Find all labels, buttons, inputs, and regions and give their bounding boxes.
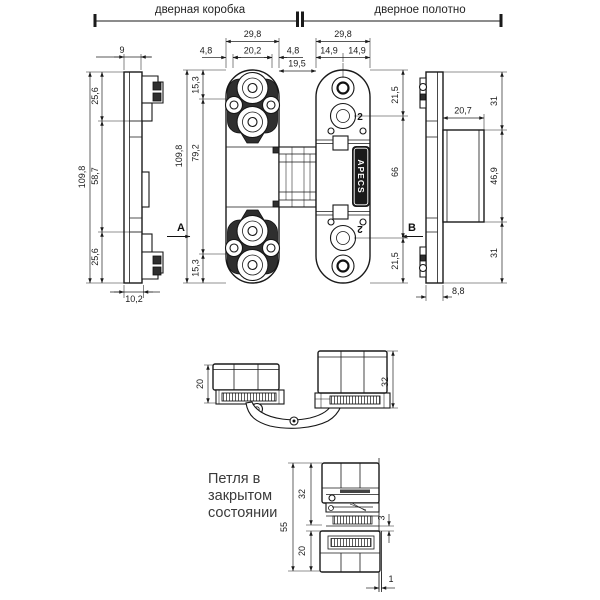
dim-frame-front-end-top: 15,3 bbox=[191, 76, 201, 94]
dim-frame-front-overall: 109,8 bbox=[174, 145, 184, 168]
cup-block bbox=[443, 130, 484, 222]
dim-frame-side-overall: 109,8 bbox=[77, 166, 87, 189]
dim-open-leaf-stack: 32 bbox=[380, 377, 390, 387]
header: дверная коробка дверное полотно bbox=[95, 4, 501, 27]
dim-frame-front-gap: 19,5 bbox=[288, 59, 306, 69]
frame-section-label: дверная коробка bbox=[155, 4, 246, 16]
leaf-front-view: APECS 2 2 bbox=[316, 70, 370, 283]
dim-frame-side-thickness: 10,2 bbox=[125, 294, 143, 304]
top-clip bbox=[420, 78, 426, 108]
note-line-3: состоянии bbox=[208, 505, 277, 521]
dim-leaf-front-half-left: 14,9 bbox=[320, 46, 338, 56]
dim-frame-side-top-width: 9 bbox=[119, 45, 124, 55]
frame-side-view: 9 109,8 25,6 58,7 25,6 10,2 bbox=[77, 45, 163, 304]
dim-frame-front-cup-width: 20,2 bbox=[244, 46, 262, 56]
dim-leaf-front-width: 29,8 bbox=[334, 29, 352, 39]
note-line-2: закрытом bbox=[208, 488, 272, 504]
closed-state-view: Петля в закрытом состоянии 55 32 20 3 bbox=[208, 458, 395, 592]
dim-closed-leaf-stack: 32 bbox=[297, 489, 307, 499]
dim-frame-front-width: 29,8 bbox=[244, 29, 262, 39]
mid-lug bbox=[142, 172, 149, 207]
brand-logo-text: APECS bbox=[356, 159, 366, 193]
dim-closed-offset: 1 bbox=[388, 574, 393, 584]
leaf-side-view: 31 20,7 46,9 31 8,8 bbox=[416, 72, 507, 301]
bottom-clip bbox=[420, 247, 426, 277]
hole-count-top: 2 bbox=[357, 112, 363, 123]
hinge-technical-drawing: дверная коробка дверное полотно 9 109,8 … bbox=[0, 0, 600, 600]
hole-count-bottom: 2 bbox=[357, 223, 363, 234]
dim-leaf-front-hole-top: 21,5 bbox=[390, 86, 400, 104]
dim-leaf-side-seg-top: 31 bbox=[489, 96, 499, 106]
open-state-view: 20 32 bbox=[195, 351, 398, 428]
dim-frame-front-offset-right: 4,8 bbox=[287, 46, 300, 56]
dim-frame-front-body: 79,2 bbox=[191, 144, 201, 162]
dim-leaf-front-hole-span: 66 bbox=[390, 167, 400, 177]
dim-frame-side-seg-mid: 58,7 bbox=[90, 167, 100, 185]
bottom-hole bbox=[331, 226, 356, 251]
dim-closed-overall: 55 bbox=[279, 522, 289, 532]
section-a-label: A bbox=[177, 222, 185, 234]
section-b-label: B bbox=[408, 222, 416, 234]
section-markers: A B bbox=[167, 222, 423, 237]
frame-front-view bbox=[226, 70, 280, 283]
leaf-section-label: дверное полотно bbox=[374, 4, 465, 16]
dim-frame-front-end-bottom: 15,3 bbox=[191, 259, 201, 277]
note-line-1: Петля в bbox=[208, 471, 261, 487]
dim-leaf-side-thickness: 8,8 bbox=[452, 286, 465, 296]
dim-frame-front-offset-left: 4,8 bbox=[200, 46, 213, 56]
dim-frame-side-seg-top: 25,6 bbox=[90, 87, 100, 105]
dim-frame-side-seg-bottom: 25,6 bbox=[90, 248, 100, 266]
dim-leaf-front-half-right: 14,9 bbox=[348, 46, 366, 56]
dim-leaf-side-cup-depth: 20,7 bbox=[454, 106, 472, 116]
dim-leaf-side-cup-height: 46,9 bbox=[489, 167, 499, 185]
drawing-canvas: дверная коробка дверное полотно 9 109,8 … bbox=[0, 0, 600, 600]
dim-leaf-front-hole-bottom: 21,5 bbox=[390, 252, 400, 270]
link-arm bbox=[279, 147, 316, 207]
dim-open-frame-stack: 20 bbox=[195, 379, 205, 389]
dim-closed-frame-stack: 20 bbox=[297, 546, 307, 556]
dim-leaf-side-seg-bottom: 31 bbox=[489, 248, 499, 258]
top-hole bbox=[331, 104, 356, 129]
dim-closed-gap: 3 bbox=[377, 515, 387, 520]
